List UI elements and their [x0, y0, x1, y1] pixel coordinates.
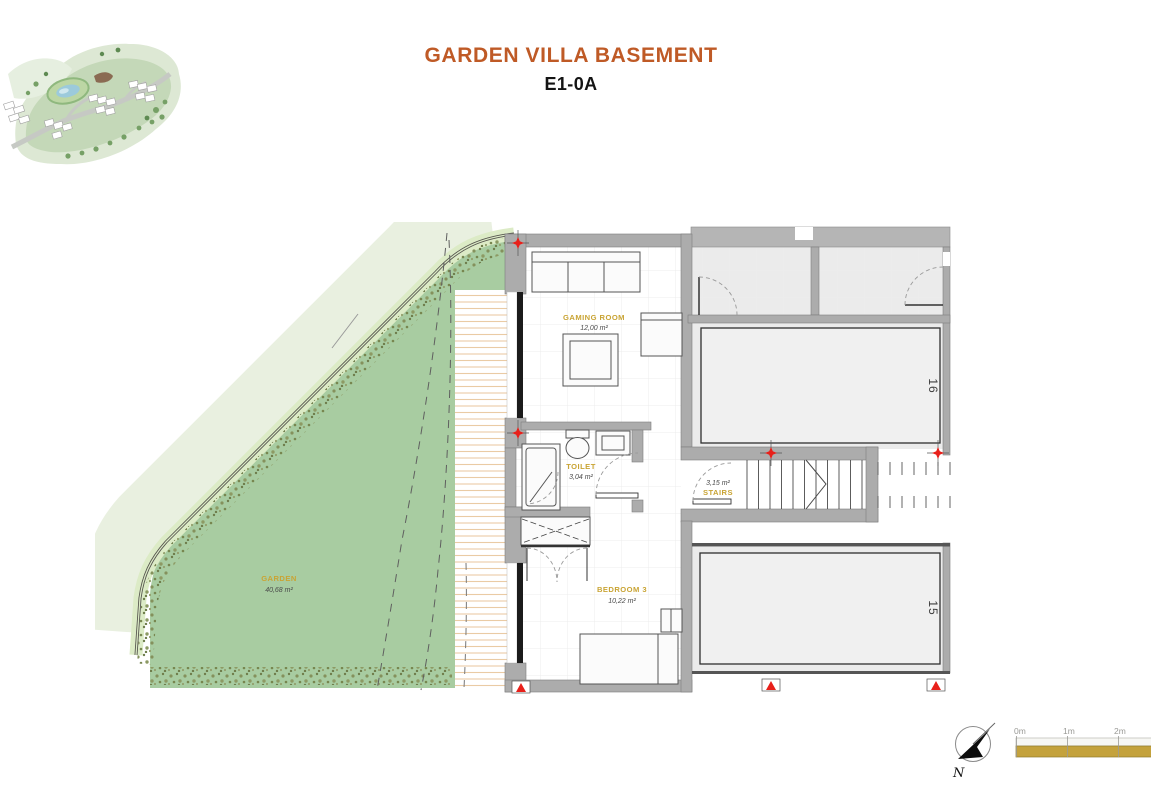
north-arrow-icon [958, 729, 990, 759]
toilet-area: 3,04 m² [569, 474, 593, 481]
gaming-room-window [517, 292, 523, 418]
floor-plan: 16 15 [0, 0, 1151, 797]
scale-bar: 0m 1m 2m [1014, 726, 1151, 757]
garden-area-label: 40,68 m² [265, 587, 293, 594]
parking-number-15: 15 [926, 600, 940, 615]
scale-tick-1m: 1m [1063, 726, 1075, 736]
marker-arrow [927, 679, 945, 691]
parking-space-16: 16 [701, 328, 940, 443]
scale-tick-2m: 2m [1114, 726, 1126, 736]
toilet-label: TOILET [566, 462, 596, 471]
garden-label: GARDEN [261, 574, 297, 583]
parking-space-15: 15 [700, 553, 940, 664]
bedroom-area: 10,22 m² [608, 598, 636, 605]
plan-sheet: GARDEN VILLA BASEMENT E1-0A [0, 0, 1151, 797]
tv-unit [641, 313, 682, 356]
washbasin [596, 431, 630, 455]
bed [580, 634, 678, 684]
marker-arrow [512, 681, 530, 693]
parking-number-16: 16 [926, 378, 940, 393]
stairs-label: STAIRS [703, 488, 733, 497]
gaming-room-area: 12,00 m² [580, 325, 608, 332]
sofa [532, 252, 640, 292]
compass: N [952, 723, 995, 781]
stairs-continuation-dashed [878, 462, 950, 508]
gaming-room-label: GAMING ROOM [563, 313, 625, 322]
marker-arrow [762, 679, 780, 691]
wardrobe [521, 517, 590, 546]
coffee-table [563, 334, 618, 386]
north-label: N [952, 766, 965, 781]
unit-code: E1-0A [0, 74, 1142, 95]
page-title: GARDEN VILLA BASEMENT [0, 44, 1142, 68]
sheet-header: GARDEN VILLA BASEMENT E1-0A [0, 44, 1142, 95]
scale-tick-0m: 0m [1014, 726, 1026, 736]
bedroom-label: BEDROOM 3 [597, 585, 647, 594]
wc [566, 430, 589, 459]
shower [522, 444, 560, 510]
nightstand [661, 609, 682, 632]
bedroom-window [517, 563, 523, 663]
terrace-deck [455, 290, 507, 688]
stairs-area: 3,15 m² [706, 480, 730, 487]
